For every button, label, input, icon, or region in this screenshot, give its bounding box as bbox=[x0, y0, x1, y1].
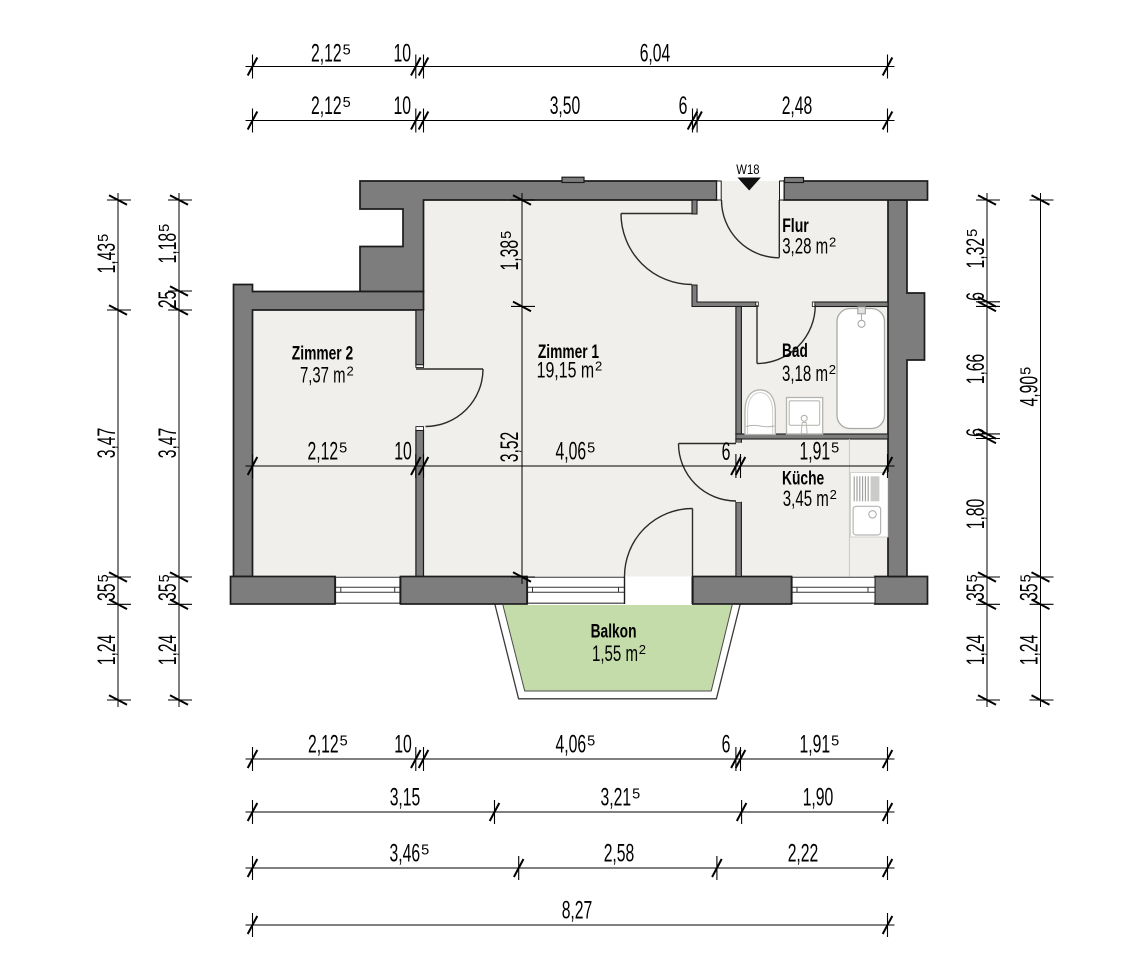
svg-text:6: 6 bbox=[962, 292, 990, 301]
svg-text:4,06: 4,06 bbox=[556, 438, 587, 466]
svg-text:5: 5 bbox=[587, 441, 595, 457]
svg-text:Bad: Bad bbox=[782, 341, 808, 362]
svg-text:7,37 m: 7,37 m bbox=[300, 362, 346, 387]
svg-text:5: 5 bbox=[96, 234, 112, 242]
svg-text:2,12: 2,12 bbox=[311, 92, 342, 120]
svg-text:6: 6 bbox=[962, 428, 990, 437]
svg-text:3,46: 3,46 bbox=[390, 840, 421, 868]
svg-text:5: 5 bbox=[831, 734, 839, 750]
svg-text:1,90: 1,90 bbox=[803, 784, 834, 812]
svg-text:5: 5 bbox=[340, 734, 348, 750]
svg-text:5: 5 bbox=[157, 574, 173, 582]
svg-text:5: 5 bbox=[831, 441, 839, 457]
svg-text:1,32: 1,32 bbox=[962, 238, 990, 269]
svg-text:3,47: 3,47 bbox=[93, 428, 121, 459]
svg-text:2,58: 2,58 bbox=[604, 840, 635, 868]
svg-text:2: 2 bbox=[829, 362, 836, 377]
svg-text:6: 6 bbox=[722, 731, 731, 759]
svg-text:2: 2 bbox=[830, 487, 837, 502]
svg-text:3,45 m: 3,45 m bbox=[783, 486, 829, 511]
svg-text:2: 2 bbox=[639, 642, 646, 657]
svg-text:25: 25 bbox=[154, 291, 182, 309]
svg-text:8,27: 8,27 bbox=[562, 897, 593, 925]
svg-text:1,24: 1,24 bbox=[962, 635, 990, 666]
svg-text:4,90: 4,90 bbox=[1016, 376, 1044, 407]
svg-text:6: 6 bbox=[679, 92, 688, 120]
svg-text:5: 5 bbox=[343, 43, 351, 59]
svg-text:5: 5 bbox=[499, 231, 515, 239]
svg-text:3,50: 3,50 bbox=[550, 92, 581, 120]
svg-text:1,24: 1,24 bbox=[1016, 635, 1044, 666]
svg-text:10: 10 bbox=[394, 40, 412, 68]
svg-text:2,12: 2,12 bbox=[308, 438, 339, 466]
svg-text:2,12: 2,12 bbox=[308, 731, 339, 759]
svg-text:5: 5 bbox=[632, 787, 640, 803]
svg-text:1,80: 1,80 bbox=[962, 499, 990, 530]
svg-text:2: 2 bbox=[829, 235, 836, 250]
svg-text:1,24: 1,24 bbox=[93, 635, 121, 666]
svg-text:10: 10 bbox=[394, 731, 412, 759]
svg-text:5: 5 bbox=[965, 229, 981, 237]
svg-text:35: 35 bbox=[154, 583, 182, 601]
svg-text:1,55 m: 1,55 m bbox=[592, 641, 638, 666]
svg-text:5: 5 bbox=[587, 734, 595, 750]
svg-text:35: 35 bbox=[93, 583, 121, 601]
svg-text:3,15: 3,15 bbox=[390, 784, 421, 812]
svg-text:5: 5 bbox=[343, 95, 351, 111]
svg-text:1,38: 1,38 bbox=[496, 240, 524, 271]
svg-text:19,15 m: 19,15 m bbox=[537, 358, 595, 383]
svg-text:1,91: 1,91 bbox=[800, 731, 831, 759]
svg-text:1,18: 1,18 bbox=[154, 233, 182, 264]
svg-text:35: 35 bbox=[1016, 583, 1044, 601]
svg-text:Balkon: Balkon bbox=[591, 621, 637, 642]
svg-text:5: 5 bbox=[96, 574, 112, 582]
svg-text:2,48: 2,48 bbox=[782, 92, 813, 120]
svg-text:10: 10 bbox=[394, 92, 412, 120]
svg-text:3,52: 3,52 bbox=[496, 432, 524, 463]
svg-text:3,21: 3,21 bbox=[601, 784, 632, 812]
svg-text:2: 2 bbox=[347, 364, 354, 379]
svg-text:1,24: 1,24 bbox=[154, 635, 182, 666]
svg-text:6: 6 bbox=[722, 438, 731, 466]
svg-text:1,43: 1,43 bbox=[93, 243, 121, 274]
svg-text:1,91: 1,91 bbox=[800, 438, 831, 466]
svg-text:3,47: 3,47 bbox=[154, 428, 182, 459]
svg-text:3,28 m: 3,28 m bbox=[782, 234, 828, 259]
svg-text:10: 10 bbox=[394, 438, 412, 466]
svg-text:2,12: 2,12 bbox=[311, 40, 342, 68]
svg-text:5: 5 bbox=[157, 224, 173, 232]
svg-text:2: 2 bbox=[595, 359, 602, 374]
svg-text:5: 5 bbox=[965, 574, 981, 582]
svg-text:2,22: 2,22 bbox=[788, 840, 819, 868]
svg-text:4,06: 4,06 bbox=[556, 731, 587, 759]
svg-text:5: 5 bbox=[1019, 574, 1035, 582]
svg-text:1,66: 1,66 bbox=[962, 354, 990, 385]
svg-text:5: 5 bbox=[339, 441, 347, 457]
svg-text:6,04: 6,04 bbox=[640, 40, 671, 68]
svg-text:W18: W18 bbox=[736, 161, 759, 177]
svg-text:3,18 m: 3,18 m bbox=[782, 361, 828, 386]
svg-text:5: 5 bbox=[1019, 367, 1035, 375]
svg-text:35: 35 bbox=[962, 583, 990, 601]
svg-text:5: 5 bbox=[421, 843, 429, 859]
